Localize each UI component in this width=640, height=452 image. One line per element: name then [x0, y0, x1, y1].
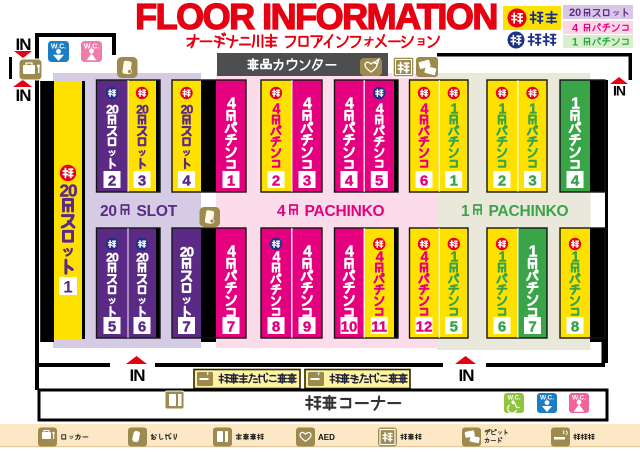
svg-text:11: 11	[371, 319, 387, 336]
svg-text:20: 20	[106, 250, 119, 264]
svg-text:3: 3	[528, 173, 536, 190]
svg-text:7: 7	[182, 319, 190, 336]
svg-text:12: 12	[416, 319, 433, 336]
svg-text:2: 2	[272, 173, 280, 190]
svg-text:20: 20	[136, 103, 149, 117]
svg-text:PACHINKO: PACHINKO	[489, 203, 569, 220]
svg-text:1: 1	[227, 173, 235, 190]
svg-text:AED: AED	[318, 433, 335, 442]
svg-text:2: 2	[498, 173, 506, 190]
svg-text:FLOOR INFORMATION: FLOOR INFORMATION	[135, 0, 497, 37]
svg-text:3: 3	[138, 173, 146, 190]
svg-text:6: 6	[420, 173, 428, 190]
svg-text:9: 9	[303, 319, 311, 336]
svg-text:20: 20	[569, 7, 581, 19]
svg-text:7: 7	[227, 319, 235, 336]
svg-text:1: 1	[461, 203, 470, 220]
svg-text:2: 2	[108, 173, 116, 190]
svg-text:8: 8	[272, 319, 280, 336]
svg-text:6: 6	[138, 319, 146, 336]
svg-text:4: 4	[572, 23, 579, 35]
svg-text:20: 20	[100, 203, 117, 220]
svg-text:IN: IN	[16, 86, 32, 105]
svg-text:5: 5	[375, 173, 383, 190]
svg-text:IN: IN	[459, 366, 475, 385]
svg-text:7: 7	[528, 319, 536, 336]
svg-text:10: 10	[341, 319, 358, 336]
svg-text:4: 4	[182, 173, 191, 190]
svg-text:20: 20	[106, 103, 119, 117]
svg-text:W.C.: W.C.	[508, 396, 521, 402]
svg-text:IN: IN	[613, 83, 626, 99]
svg-text:5: 5	[450, 319, 458, 336]
svg-text:20: 20	[136, 250, 149, 264]
svg-text:1: 1	[63, 278, 72, 297]
svg-text:20: 20	[59, 181, 77, 201]
svg-text:1: 1	[572, 37, 578, 49]
svg-text:5: 5	[108, 319, 116, 336]
svg-text:1: 1	[450, 173, 458, 190]
svg-text:PACHINKO: PACHINKO	[305, 203, 385, 220]
svg-text:3: 3	[303, 173, 311, 190]
svg-text:IN: IN	[130, 366, 146, 385]
svg-text:4: 4	[571, 173, 580, 190]
svg-text:6: 6	[498, 319, 506, 336]
svg-text:4: 4	[345, 173, 354, 190]
svg-text:SLOT: SLOT	[137, 203, 178, 220]
svg-text:4: 4	[277, 203, 286, 220]
svg-text:8: 8	[571, 319, 579, 336]
svg-text:20: 20	[180, 245, 195, 260]
svg-text:20: 20	[181, 103, 194, 117]
